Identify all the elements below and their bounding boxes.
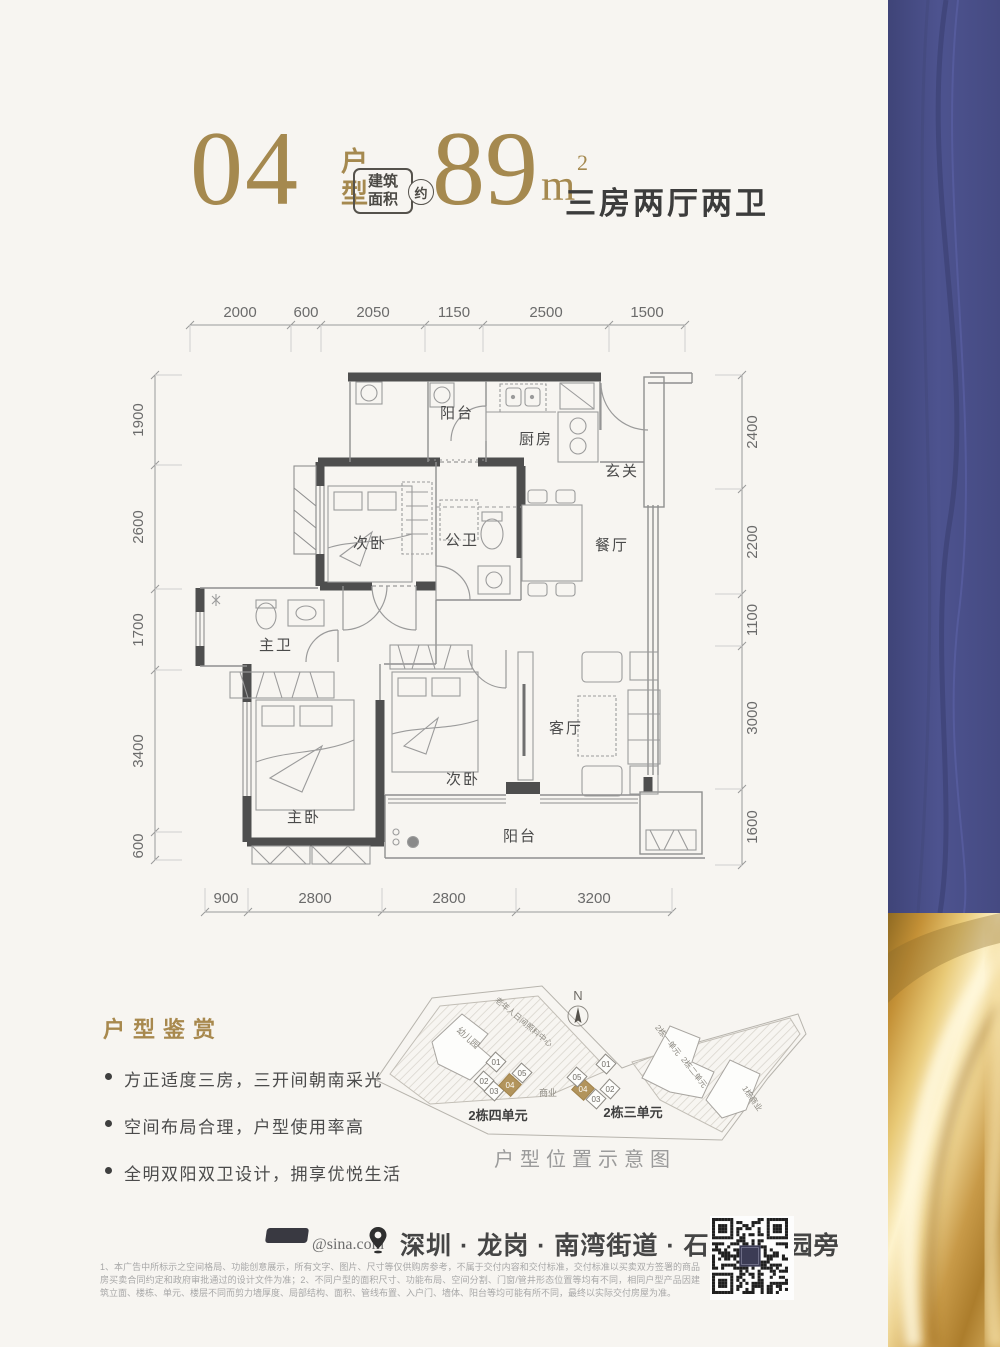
dim-bottom-2: 2800	[298, 890, 331, 907]
bed-icon	[392, 672, 478, 772]
page: { "header": { "unit_number": "04", "unit…	[0, 0, 1000, 1347]
area-exponent: 2	[577, 150, 588, 176]
dim-bottom-4: 3200	[577, 890, 610, 907]
dim-left-2: 2600	[130, 510, 147, 543]
unit-square-label: 05	[518, 1069, 527, 1078]
room-dining: 餐厅	[595, 537, 629, 554]
room-bedroom-master: 主卧	[287, 809, 321, 826]
feature-text: 全明双阳双卫设计，拥享优悦生活	[124, 1160, 402, 1185]
dim-left-1: 1900	[130, 403, 147, 436]
dim-top-4: 1150	[438, 304, 470, 321]
dim-right-5: 1600	[744, 810, 761, 843]
unit-number: 04	[190, 116, 300, 222]
shower-head-icon	[212, 594, 220, 606]
decorative-side-band	[888, 0, 1000, 1347]
compass-icon: N	[568, 988, 588, 1026]
furniture	[212, 382, 696, 864]
unit-square-label-highlight: 04	[579, 1085, 588, 1094]
unit-square-label-highlight: 04	[506, 1081, 515, 1090]
gold-silk-band	[888, 913, 1000, 1347]
unit-square-label: 03	[490, 1087, 499, 1096]
area-approx-badge: 约	[408, 179, 434, 205]
room-bath-master: 主卫	[259, 637, 293, 654]
area-box: 建筑 面积	[353, 168, 413, 214]
area-value: 89	[432, 116, 538, 222]
coffee-table-icon	[578, 696, 616, 756]
vanity-icon	[478, 566, 510, 594]
vanity-icon	[288, 600, 324, 626]
unit-square-label: 01	[602, 1060, 611, 1069]
unit-square-label: 05	[573, 1073, 582, 1082]
dim-left-4: 3400	[130, 734, 147, 767]
dim-right-1: 2400	[744, 415, 761, 448]
qr-code	[710, 1216, 794, 1300]
dim-left-5: 600	[130, 833, 147, 858]
room-balcony-bottom: 阳台	[503, 828, 537, 845]
bullet-icon	[105, 1167, 112, 1174]
side-table-icon	[630, 652, 658, 680]
room-kitchen: 厨房	[519, 431, 553, 448]
room-foyer: 玄关	[605, 463, 639, 480]
dim-top-3: 2050	[356, 304, 389, 321]
disclaimer-text: 1、本广告中所标示之空间格局、功能创意展示，所有文字、图片、尺寸等仅供购房参考，…	[100, 1261, 700, 1300]
dim-left-3: 1700	[130, 613, 147, 646]
floor-plan: 2000 600 2050 1150 2500 1500 1900 2600 1…	[120, 290, 780, 950]
wardrobe-icon	[402, 482, 432, 554]
toilet-icon	[256, 603, 276, 629]
unit-square-label: 01	[492, 1058, 501, 1067]
washer-icon	[434, 387, 450, 403]
room-bedroom3: 次卧	[446, 771, 480, 788]
dim-right-3: 1100	[744, 604, 761, 636]
cluster-right-title: 2栋三单元	[603, 1105, 662, 1120]
feature-text: 方正适度三房，三开间朝南采光	[124, 1066, 383, 1091]
floor-drain-icon	[408, 837, 419, 848]
north-label: N	[573, 988, 582, 1003]
room-bath-shared: 公卫	[445, 532, 479, 549]
unit-square-label: 02	[480, 1077, 489, 1086]
dim-top-2: 600	[293, 304, 318, 321]
location-pin-icon	[368, 1226, 388, 1254]
dim-bottom-1: 900	[213, 890, 238, 907]
armchair-icon	[582, 652, 622, 682]
dim-bottom-3: 2800	[432, 890, 465, 907]
bullet-icon	[105, 1120, 112, 1127]
dining-table-icon	[522, 505, 582, 581]
toilet-icon	[481, 519, 503, 549]
blue-silk-band	[888, 0, 1000, 913]
brand-logo	[265, 1228, 309, 1243]
bullet-icon	[105, 1073, 112, 1080]
room-balcony-top: 阳台	[440, 405, 474, 422]
room-living: 客厅	[549, 720, 583, 737]
cluster-titles: 2栋四单元 2栋三单元	[468, 1105, 662, 1123]
unit-square-label: 02	[606, 1085, 615, 1094]
room-bedroom2: 次卧	[353, 535, 387, 552]
dim-right-2: 2200	[744, 525, 761, 558]
sofa-icon	[628, 690, 660, 764]
label-commerce: 商业	[539, 1087, 557, 1098]
dim-top-1: 2000	[223, 304, 256, 321]
dim-top-6: 1500	[630, 304, 663, 321]
dim-top-5: 2500	[529, 304, 562, 321]
site-parcels	[390, 996, 800, 1132]
site-plan: 幼儿园 老年人日间照料中心 商业 2栋一单元 2栋二单元 1栋商业 01 02 …	[370, 982, 810, 1167]
bed-icon	[256, 700, 354, 810]
feature-text: 空间布局合理，户型使用率高	[124, 1113, 365, 1138]
layout-summary: 三房两厅两卫	[565, 178, 769, 223]
armchair-icon	[582, 766, 622, 796]
siteplan-caption: 户型位置示意图	[455, 1143, 715, 1172]
dim-right-4: 3000	[744, 701, 761, 734]
area-box-line2: 面积	[368, 191, 398, 209]
area-box-line1: 建筑	[368, 173, 398, 191]
cluster-left-title: 2栋四单元	[468, 1108, 527, 1123]
heater-icon	[361, 385, 377, 401]
unit-square-label: 03	[592, 1095, 601, 1104]
